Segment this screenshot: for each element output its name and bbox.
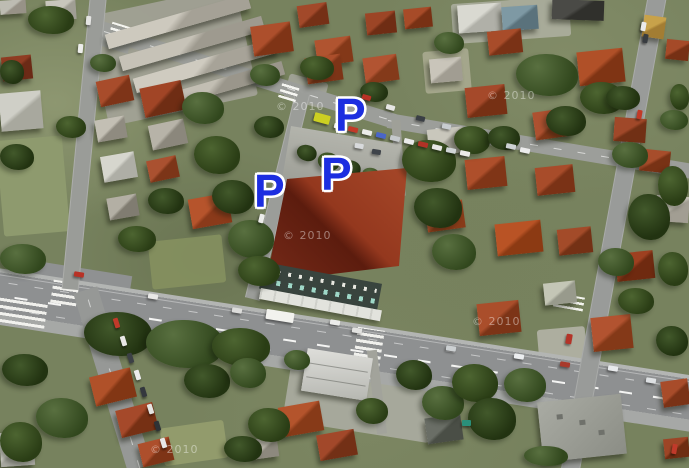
markers-layer: P P P [0, 0, 689, 468]
parking-marker-north[interactable]: P [335, 92, 366, 138]
satellite-map[interactable]: © 2010 © 2010 © 2010 © 2010 © 2010 P P P [0, 0, 689, 468]
parking-marker-west[interactable]: P [254, 168, 285, 214]
parking-marker-center[interactable]: P [321, 151, 352, 197]
